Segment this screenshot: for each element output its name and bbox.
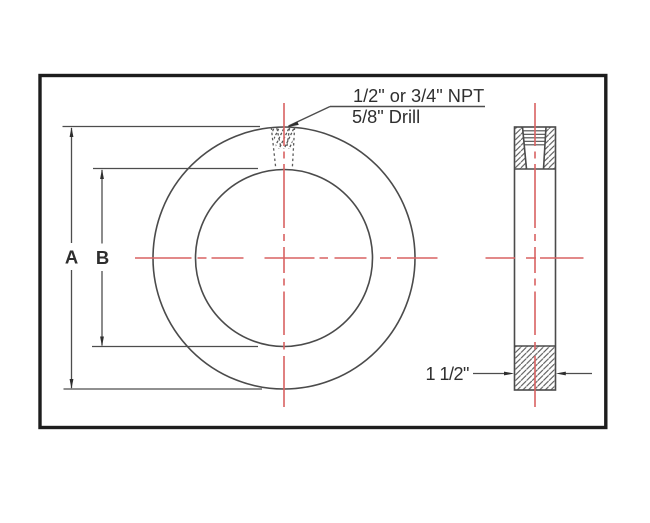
svg-text:B: B (96, 247, 109, 268)
svg-text:1 1/2": 1 1/2" (425, 364, 469, 384)
svg-text:5/8" Drill: 5/8" Drill (352, 107, 420, 127)
svg-text:1/2" or 3/4" NPT: 1/2" or 3/4" NPT (353, 86, 484, 106)
svg-text:A: A (65, 246, 78, 267)
